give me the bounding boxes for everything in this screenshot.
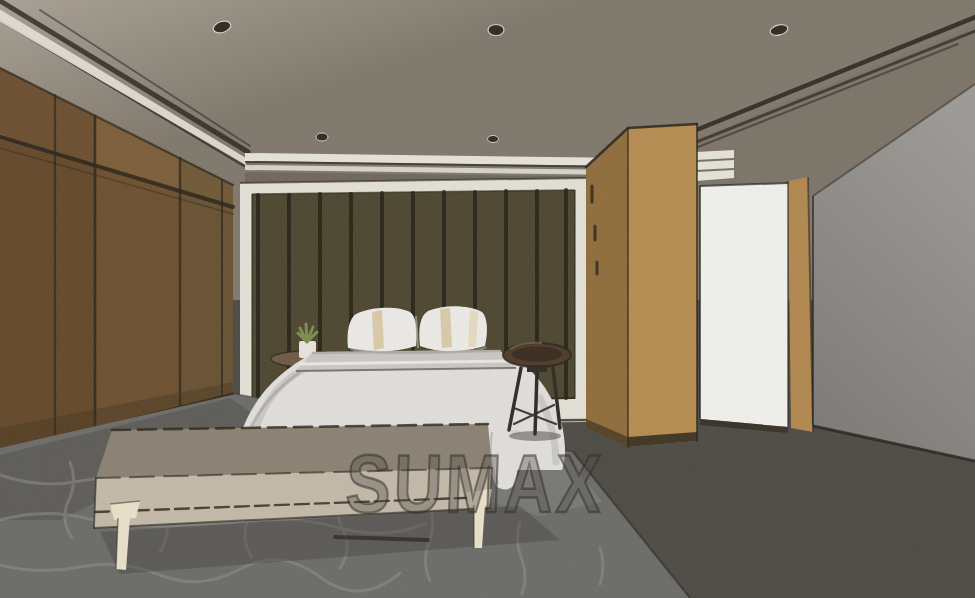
rendering-canvas: SUMAX (0, 0, 975, 598)
grain-texture-overlay (0, 0, 975, 598)
bedroom-rendering: SUMAX (0, 0, 975, 598)
